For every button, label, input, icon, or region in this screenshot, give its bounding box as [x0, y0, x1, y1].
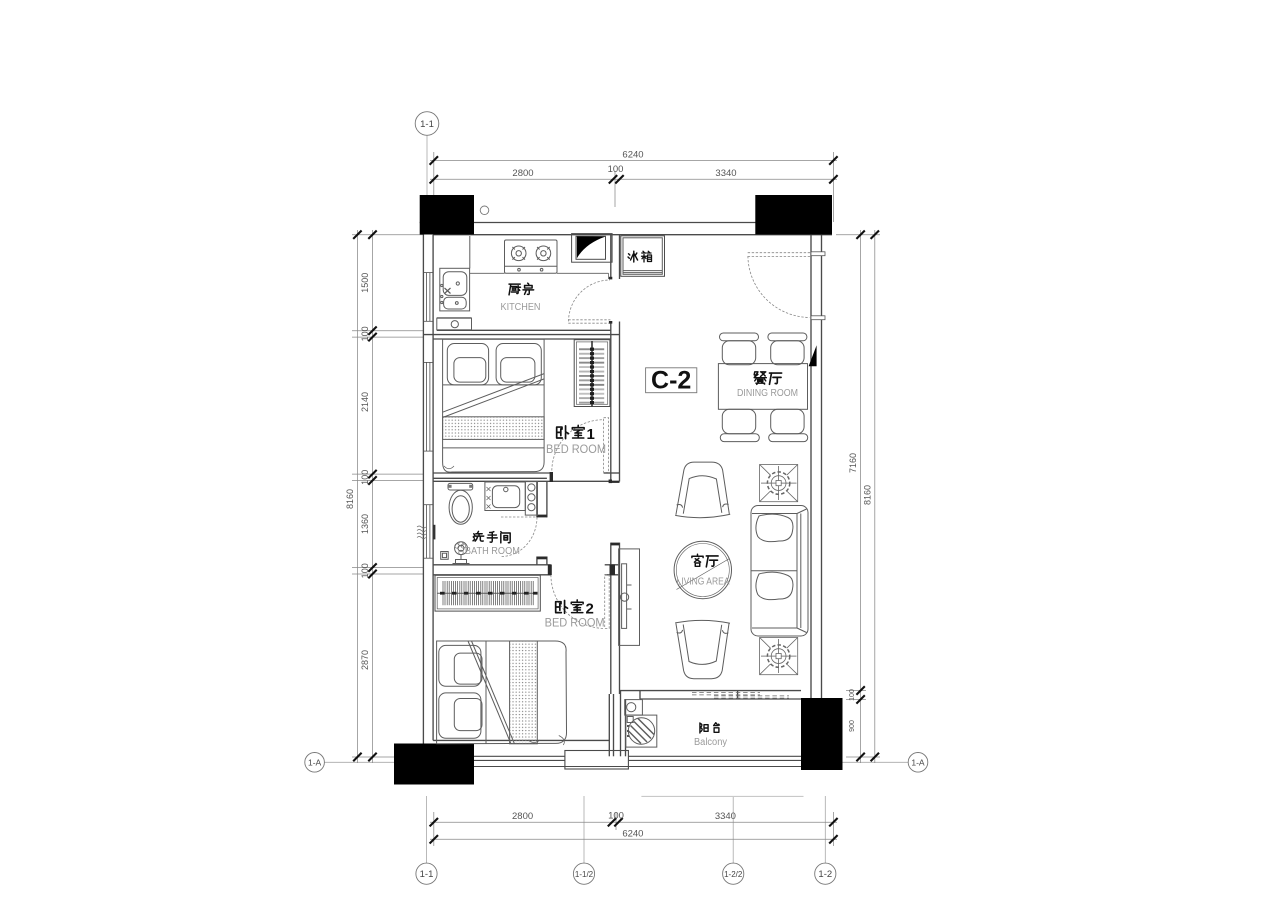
svg-text:900: 900: [849, 720, 856, 732]
svg-text:1500: 1500: [360, 273, 370, 293]
svg-text:100: 100: [360, 470, 370, 485]
svg-text:LIVING AREA: LIVING AREA: [677, 577, 730, 588]
svg-text:2870: 2870: [360, 650, 370, 670]
svg-text:1-1/2: 1-1/2: [575, 870, 594, 879]
svg-text:3340: 3340: [715, 168, 736, 179]
svg-text:8160: 8160: [863, 485, 873, 505]
svg-text:1-A: 1-A: [911, 758, 925, 768]
svg-text:1-2: 1-2: [818, 869, 832, 880]
svg-text:BATH ROOM: BATH ROOM: [465, 545, 520, 557]
svg-text:100: 100: [849, 689, 856, 701]
svg-text:DINING ROOM: DINING ROOM: [737, 387, 798, 399]
svg-text:KITCHEN: KITCHEN: [501, 301, 541, 313]
svg-text:8160: 8160: [345, 489, 355, 509]
svg-text:1360: 1360: [360, 514, 370, 534]
svg-text:2140: 2140: [360, 392, 370, 412]
svg-text:BED ROOM: BED ROOM: [546, 444, 606, 456]
svg-text:3340: 3340: [715, 811, 736, 822]
svg-text:100: 100: [360, 326, 370, 341]
svg-text:BED ROOM: BED ROOM: [545, 617, 605, 629]
svg-text:6240: 6240: [622, 829, 643, 840]
svg-text:Balcony: Balcony: [694, 737, 727, 748]
svg-text:C-2: C-2: [651, 367, 691, 395]
svg-text:100: 100: [360, 563, 370, 578]
svg-text:100: 100: [608, 164, 624, 175]
svg-text:2800: 2800: [512, 811, 533, 822]
svg-text:1: 1: [587, 426, 595, 443]
svg-text:2: 2: [586, 600, 594, 617]
svg-text:1-A: 1-A: [308, 758, 322, 768]
svg-text:1-2/2: 1-2/2: [724, 870, 743, 879]
svg-text:2800: 2800: [512, 168, 533, 179]
svg-text:100: 100: [608, 811, 624, 822]
svg-text:7160: 7160: [848, 453, 858, 473]
svg-text:6240: 6240: [622, 150, 643, 161]
svg-text:1-1: 1-1: [420, 869, 434, 880]
svg-text:1-1: 1-1: [420, 119, 434, 130]
